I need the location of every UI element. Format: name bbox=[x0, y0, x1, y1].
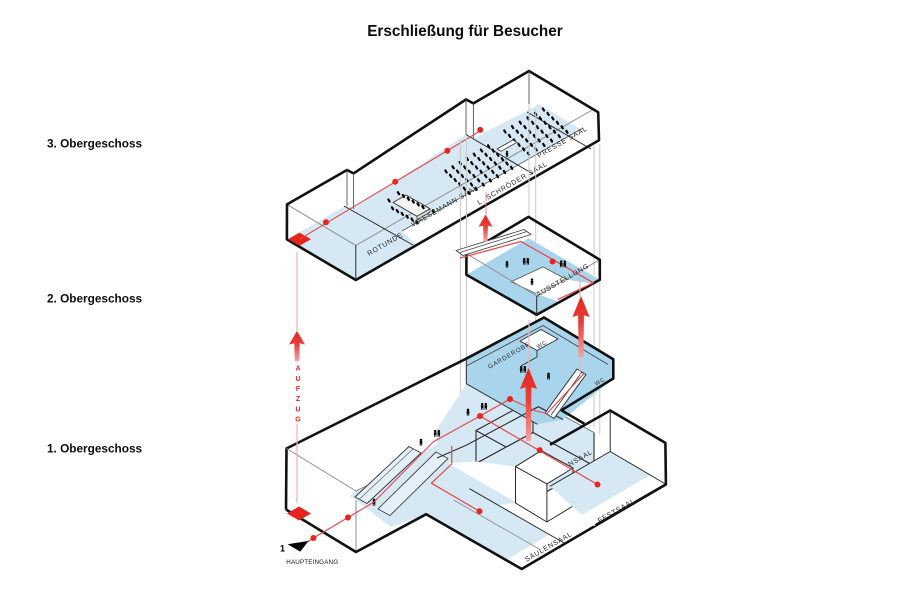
svg-text:2. Obergeschoss: 2. Obergeschoss bbox=[47, 292, 143, 306]
svg-text:Erschließung für Besucher: Erschließung für Besucher bbox=[367, 23, 563, 40]
svg-text:1: 1 bbox=[280, 544, 285, 554]
svg-text:3. Obergeschoss: 3. Obergeschoss bbox=[47, 137, 143, 151]
svg-text:HAUPTEINGANG: HAUPTEINGANG bbox=[286, 559, 338, 566]
svg-text:1. Obergeschoss: 1. Obergeschoss bbox=[47, 442, 143, 456]
svg-text:AUFZUG: AUFZUG bbox=[295, 366, 301, 424]
